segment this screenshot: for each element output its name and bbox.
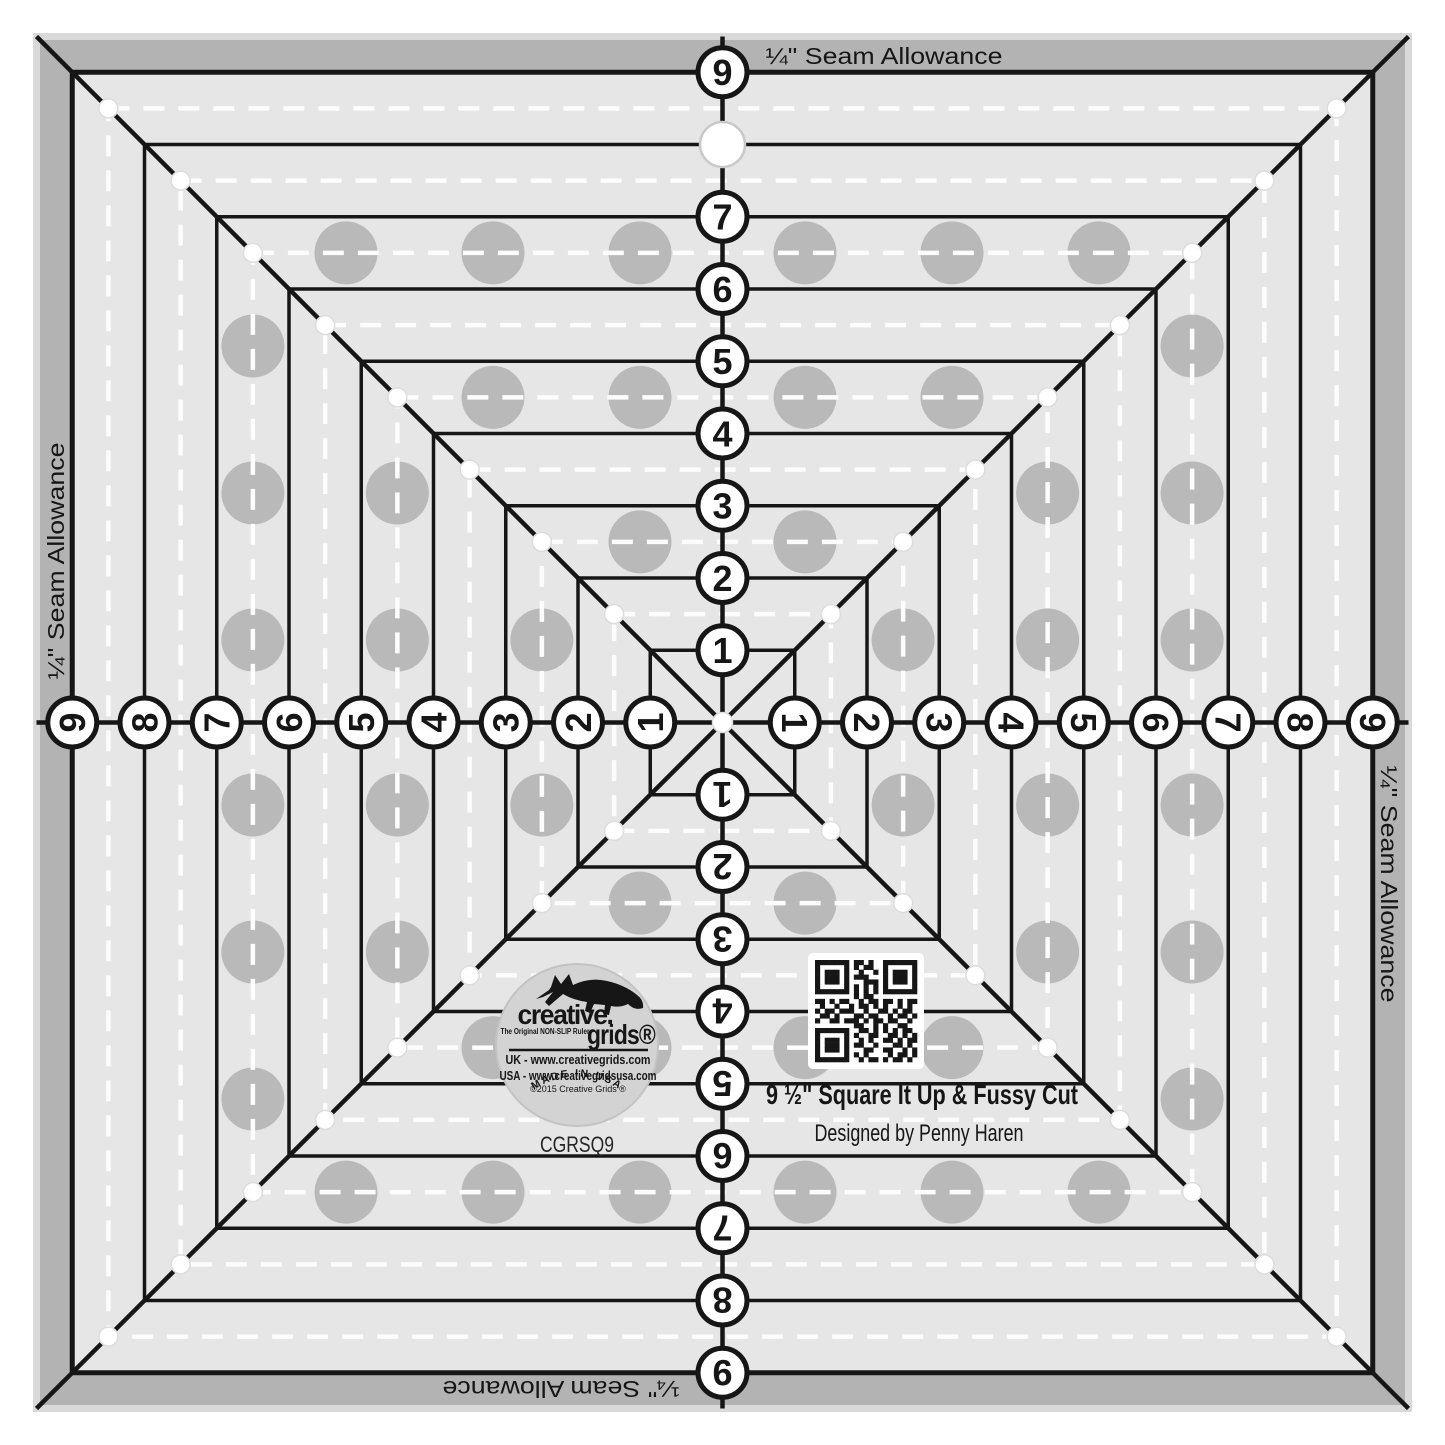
qr-module bbox=[830, 1018, 835, 1023]
qr-module bbox=[825, 1009, 830, 1014]
diagonal-dot bbox=[243, 1183, 262, 1202]
inch-marker-bottom-4: 4 bbox=[698, 987, 747, 1036]
qr-module bbox=[898, 979, 903, 984]
qr-module bbox=[815, 1028, 820, 1033]
qr-module bbox=[859, 975, 864, 980]
qr-module bbox=[883, 970, 888, 975]
qr-module bbox=[854, 960, 859, 965]
qr-module bbox=[830, 1009, 835, 1014]
qr-module bbox=[844, 1009, 849, 1014]
qr-module bbox=[902, 960, 907, 965]
qr-module bbox=[864, 1047, 869, 1052]
seam-allowance-label-right: ¼" Seam Allowance bbox=[1376, 766, 1402, 1003]
qr-module bbox=[883, 1028, 888, 1033]
qr-module bbox=[830, 1028, 835, 1033]
qr-module bbox=[830, 960, 835, 965]
qr-module bbox=[902, 1013, 907, 1018]
diagonal-dot bbox=[1327, 1327, 1346, 1346]
qr-module bbox=[839, 1028, 844, 1033]
qr-module bbox=[883, 979, 888, 984]
qr-module bbox=[912, 1013, 917, 1018]
qr-module bbox=[815, 965, 820, 970]
inch-marker-number: 6 bbox=[269, 712, 310, 732]
qr-module bbox=[815, 1009, 820, 1014]
designer-credit: Designed by Penny Haren bbox=[815, 1120, 1024, 1147]
qr-module bbox=[844, 1028, 849, 1033]
qr-module bbox=[830, 1057, 835, 1062]
inch-marker-number: 3 bbox=[712, 486, 732, 527]
qr-module bbox=[825, 1028, 830, 1033]
qr-module bbox=[830, 1047, 835, 1052]
qr-module bbox=[834, 1004, 839, 1009]
hanging-hole bbox=[700, 122, 745, 167]
qr-module bbox=[883, 975, 888, 980]
qr-module bbox=[888, 1033, 893, 1038]
qr-module bbox=[898, 960, 903, 965]
qr-module bbox=[893, 970, 898, 975]
inch-marker-number: 5 bbox=[341, 712, 382, 732]
qr-module bbox=[902, 1009, 907, 1014]
qr-module bbox=[868, 1047, 873, 1052]
inch-marker-number: 8 bbox=[124, 712, 165, 732]
inch-marker-number: 2 bbox=[558, 712, 599, 732]
qr-module bbox=[844, 960, 849, 965]
qr-module bbox=[815, 1043, 820, 1048]
diagonal-dot bbox=[1255, 171, 1274, 190]
qr-module bbox=[815, 999, 820, 1004]
diagonal-dot bbox=[1255, 1255, 1274, 1274]
qr-module bbox=[815, 970, 820, 975]
qr-module bbox=[834, 1043, 839, 1048]
diagonal-dot bbox=[532, 532, 551, 551]
qr-module bbox=[854, 965, 859, 970]
qr-module bbox=[902, 989, 907, 994]
diagonal-dot bbox=[460, 966, 479, 985]
diagonal-dot bbox=[1110, 316, 1129, 335]
qr-module bbox=[907, 1057, 912, 1062]
qr-module bbox=[868, 994, 873, 999]
qr-module bbox=[820, 999, 825, 1004]
qr-module bbox=[844, 1038, 849, 1043]
qr-module bbox=[898, 1052, 903, 1057]
qr-module bbox=[873, 970, 878, 975]
inch-marker-number: 6 bbox=[712, 269, 732, 310]
qr-module bbox=[825, 970, 830, 975]
inch-marker-right-7: 7 bbox=[1204, 698, 1253, 747]
qr-module bbox=[888, 999, 893, 1004]
qr-module bbox=[864, 984, 869, 989]
qr-module bbox=[830, 979, 835, 984]
qr-module bbox=[893, 989, 898, 994]
inch-marker-left-6: 6 bbox=[265, 698, 314, 747]
qr-module bbox=[825, 1043, 830, 1048]
inch-marker-right-5: 5 bbox=[1059, 698, 1108, 747]
diagonal-dot bbox=[171, 171, 190, 190]
seam-allowance-label-left: ¼" Seam Allowance bbox=[43, 443, 69, 680]
qr-module bbox=[868, 960, 873, 965]
inch-marker-number: 8 bbox=[712, 1280, 732, 1321]
qr-module bbox=[873, 989, 878, 994]
qr-module bbox=[820, 1057, 825, 1062]
qr-module bbox=[907, 989, 912, 994]
qr-module bbox=[878, 1018, 883, 1023]
qr-module bbox=[883, 999, 888, 1004]
qr-module bbox=[815, 989, 820, 994]
qr-module bbox=[859, 1023, 864, 1028]
qr-module bbox=[873, 984, 878, 989]
qr-module bbox=[830, 999, 835, 1004]
inch-marker-top-3: 3 bbox=[698, 481, 747, 530]
qr-module bbox=[898, 1004, 903, 1009]
inch-marker-top-2: 2 bbox=[698, 554, 747, 603]
qr-module bbox=[844, 1057, 849, 1062]
diagonal-dot bbox=[243, 243, 262, 262]
inch-marker-bottom-6: 6 bbox=[698, 1132, 747, 1181]
qr-module bbox=[873, 999, 878, 1004]
center-dot bbox=[713, 713, 733, 733]
qr-module bbox=[854, 989, 859, 994]
qr-module bbox=[830, 970, 835, 975]
diagonal-dot bbox=[1183, 1183, 1202, 1202]
inch-marker-number: 4 bbox=[991, 712, 1032, 732]
qr-module bbox=[844, 1018, 849, 1023]
qr-module bbox=[902, 1033, 907, 1038]
qr-module bbox=[815, 1033, 820, 1038]
qr-module bbox=[898, 1038, 903, 1043]
qr-module bbox=[883, 960, 888, 965]
qr-module bbox=[820, 960, 825, 965]
inch-marker-number: 8 bbox=[1280, 712, 1321, 732]
inch-marker-number: 9 bbox=[52, 712, 93, 732]
qr-module bbox=[907, 1009, 912, 1014]
qr-module bbox=[868, 979, 873, 984]
inch-marker-right-1: 1 bbox=[770, 698, 819, 747]
qr-module bbox=[893, 979, 898, 984]
qr-module bbox=[815, 1057, 820, 1062]
qr-module bbox=[912, 970, 917, 975]
inch-marker-number: 7 bbox=[712, 1207, 732, 1248]
qr-module bbox=[883, 1057, 888, 1062]
qr-module bbox=[834, 1057, 839, 1062]
qr-module bbox=[893, 1009, 898, 1014]
inch-marker-number: 2 bbox=[846, 712, 887, 732]
qr-module bbox=[902, 975, 907, 980]
inch-marker-number: 2 bbox=[712, 558, 732, 599]
qr-module bbox=[873, 1033, 878, 1038]
diagonal-dot bbox=[460, 460, 479, 479]
qr-module bbox=[815, 960, 820, 965]
qr-module bbox=[854, 975, 859, 980]
qr-module bbox=[825, 1013, 830, 1018]
qr-module bbox=[864, 965, 869, 970]
qr-module bbox=[844, 979, 849, 984]
qr-module bbox=[888, 989, 893, 994]
inch-marker-number: 9 bbox=[1352, 712, 1393, 732]
qr-module bbox=[834, 989, 839, 994]
qr-module bbox=[878, 1009, 883, 1014]
qr-module bbox=[907, 960, 912, 965]
qr-module bbox=[902, 1047, 907, 1052]
qr-module bbox=[820, 1013, 825, 1018]
qr-module bbox=[902, 1052, 907, 1057]
qr-module bbox=[902, 979, 907, 984]
inch-marker-number: 6 bbox=[712, 1135, 732, 1176]
qr-module bbox=[834, 975, 839, 980]
qr-module bbox=[864, 1004, 869, 1009]
inch-marker-number: 7 bbox=[712, 197, 732, 238]
qr-module bbox=[839, 1057, 844, 1062]
inch-marker-left-9: 9 bbox=[48, 698, 97, 747]
qr-module bbox=[859, 1057, 864, 1062]
inch-marker-number: 6 bbox=[1135, 712, 1176, 732]
inch-marker-number: 2 bbox=[712, 846, 732, 887]
qr-module bbox=[907, 1018, 912, 1023]
diagonal-dot bbox=[316, 1110, 335, 1129]
qr-module bbox=[839, 999, 844, 1004]
qr-module bbox=[815, 975, 820, 980]
qr-module bbox=[873, 1057, 878, 1062]
diagonal-dot bbox=[99, 1327, 118, 1346]
qr-module bbox=[830, 975, 835, 980]
diagonal-dot bbox=[1038, 388, 1057, 407]
qr-module bbox=[839, 960, 844, 965]
qr-module bbox=[834, 1047, 839, 1052]
inch-marker-left-3: 3 bbox=[481, 698, 530, 747]
inch-marker-right-3: 3 bbox=[915, 698, 964, 747]
qr-module bbox=[844, 970, 849, 975]
qr-module bbox=[839, 989, 844, 994]
inch-marker-bottom-7: 7 bbox=[698, 1204, 747, 1253]
qr-module bbox=[815, 984, 820, 989]
qr-module bbox=[854, 1043, 859, 1048]
qr-module bbox=[898, 970, 903, 975]
qr-module bbox=[830, 1043, 835, 1048]
qr-module bbox=[907, 1043, 912, 1048]
qr-module bbox=[893, 960, 898, 965]
qr-module bbox=[844, 1043, 849, 1048]
qr-module bbox=[883, 989, 888, 994]
qr-module bbox=[815, 979, 820, 984]
qr-module bbox=[888, 1018, 893, 1023]
qr-module bbox=[893, 975, 898, 980]
qr-module bbox=[864, 1009, 869, 1014]
qr-module bbox=[830, 989, 835, 994]
qr-module bbox=[825, 960, 830, 965]
inch-marker-number: 4 bbox=[712, 991, 732, 1032]
inch-marker-number: 7 bbox=[1207, 712, 1248, 732]
qr-module bbox=[912, 979, 917, 984]
qr-module bbox=[898, 1043, 903, 1048]
qr-module bbox=[820, 1004, 825, 1009]
qr-module bbox=[859, 1038, 864, 1043]
diagonal-dot bbox=[1110, 1110, 1129, 1129]
qr-module bbox=[854, 1033, 859, 1038]
diagonal-dot bbox=[605, 605, 624, 624]
inch-marker-right-9: 9 bbox=[1348, 698, 1397, 747]
qr-module bbox=[912, 1047, 917, 1052]
diagonal-dot bbox=[894, 894, 913, 913]
qr-module bbox=[864, 989, 869, 994]
diagonal-dot bbox=[605, 821, 624, 840]
inch-marker-bottom-1: 1 bbox=[698, 770, 747, 819]
qr-module bbox=[888, 1047, 893, 1052]
qr-module bbox=[864, 994, 869, 999]
qr-module bbox=[907, 999, 912, 1004]
qr-module bbox=[912, 1033, 917, 1038]
qr-module bbox=[898, 1057, 903, 1062]
qr-module bbox=[912, 975, 917, 980]
qr-module bbox=[844, 1047, 849, 1052]
inch-marker-number: 4 bbox=[413, 712, 454, 732]
qr-module bbox=[854, 984, 859, 989]
qr-module bbox=[859, 1004, 864, 1009]
inch-marker-number: 9 bbox=[712, 1352, 732, 1393]
qr-module bbox=[883, 1038, 888, 1043]
qr-module bbox=[883, 965, 888, 970]
qr-module bbox=[844, 999, 849, 1004]
inch-marker-top-6: 6 bbox=[698, 265, 747, 314]
qr-module bbox=[883, 984, 888, 989]
diagonal-dot bbox=[894, 532, 913, 551]
qr-module bbox=[854, 1013, 859, 1018]
qr-module bbox=[864, 1052, 869, 1057]
qr-module bbox=[839, 1009, 844, 1014]
qr-module bbox=[912, 984, 917, 989]
inch-marker-number: 4 bbox=[712, 413, 732, 454]
qr-module bbox=[859, 1013, 864, 1018]
qr-module bbox=[820, 1028, 825, 1033]
qr-module bbox=[854, 1052, 859, 1057]
qr-module bbox=[834, 960, 839, 965]
qr-module bbox=[873, 1018, 878, 1023]
diagonal-dot bbox=[316, 316, 335, 335]
inch-marker-right-4: 4 bbox=[987, 698, 1036, 747]
qr-module bbox=[902, 1028, 907, 1033]
diagonal-dot bbox=[388, 1038, 407, 1057]
qr-module bbox=[844, 989, 849, 994]
product-title: 9 ½" Square It Up & Fussy Cut bbox=[766, 1079, 1078, 1110]
inch-marker-top-9: 9 bbox=[698, 48, 747, 97]
diagonal-dot bbox=[966, 966, 985, 985]
qr-module bbox=[815, 1038, 820, 1043]
qr-module bbox=[844, 984, 849, 989]
uk-url-label: UK - www.creativegrids.com bbox=[506, 1052, 651, 1067]
inch-marker-right-6: 6 bbox=[1132, 698, 1181, 747]
qr-module bbox=[859, 1043, 864, 1048]
inch-marker-number: 5 bbox=[712, 341, 732, 382]
qr-code bbox=[808, 953, 924, 1069]
diagonal-dot bbox=[821, 821, 840, 840]
qr-module bbox=[815, 1018, 820, 1023]
inch-marker-number: 1 bbox=[712, 774, 732, 815]
qr-module bbox=[873, 1023, 878, 1028]
qr-module bbox=[834, 1028, 839, 1033]
qr-module bbox=[825, 1047, 830, 1052]
qr-module bbox=[834, 1038, 839, 1043]
qr-module bbox=[859, 970, 864, 975]
qr-module bbox=[873, 1004, 878, 1009]
inch-marker-left-2: 2 bbox=[554, 698, 603, 747]
qr-module bbox=[868, 1057, 873, 1062]
inch-marker-number: 7 bbox=[197, 712, 238, 732]
qr-module bbox=[844, 1052, 849, 1057]
diagonal-dot bbox=[1038, 1038, 1057, 1057]
diagonal-dot bbox=[821, 605, 840, 624]
brand-bottom-label: grids® bbox=[587, 1019, 656, 1050]
ruler-graphic: creative.The Original NON-SLIP Rulergrid… bbox=[0, 0, 1445, 1445]
qr-module bbox=[893, 1033, 898, 1038]
inch-marker-left-4: 4 bbox=[409, 698, 458, 747]
qr-module bbox=[854, 1018, 859, 1023]
qr-module bbox=[873, 979, 878, 984]
qr-module bbox=[893, 1057, 898, 1062]
qr-module bbox=[868, 1033, 873, 1038]
qr-module bbox=[883, 1004, 888, 1009]
qr-module bbox=[912, 1038, 917, 1043]
inch-marker-bottom-8: 8 bbox=[698, 1276, 747, 1325]
logo-badge: creative.The Original NON-SLIP Rulergrid… bbox=[496, 964, 658, 1126]
qr-module bbox=[868, 965, 873, 970]
inch-marker-top-1: 1 bbox=[698, 626, 747, 675]
diagonal-dot bbox=[171, 1255, 190, 1274]
inch-marker-bottom-9: 9 bbox=[698, 1348, 747, 1397]
inch-marker-top-4: 4 bbox=[698, 409, 747, 458]
diagonal-dot bbox=[99, 99, 118, 118]
qr-module bbox=[888, 1052, 893, 1057]
qr-module bbox=[859, 1028, 864, 1033]
diagonal-dot bbox=[388, 388, 407, 407]
qr-module bbox=[825, 975, 830, 980]
qr-module bbox=[864, 1028, 869, 1033]
inch-marker-left-1: 1 bbox=[626, 698, 675, 747]
qr-module bbox=[834, 1018, 839, 1023]
qr-module bbox=[873, 1028, 878, 1033]
qr-module bbox=[864, 975, 869, 980]
qr-module bbox=[825, 989, 830, 994]
qr-module bbox=[834, 1013, 839, 1018]
qr-module bbox=[883, 1023, 888, 1028]
inch-marker-top-7: 7 bbox=[698, 192, 747, 241]
qr-module bbox=[912, 960, 917, 965]
diagonal-dot bbox=[1327, 99, 1346, 118]
qr-module bbox=[898, 999, 903, 1004]
qr-module bbox=[898, 1023, 903, 1028]
qr-module bbox=[907, 1004, 912, 1009]
qr-module bbox=[888, 1038, 893, 1043]
seam-allowance-label-top: ¼" Seam Allowance bbox=[766, 43, 1003, 69]
qr-module bbox=[883, 1047, 888, 1052]
diagonal-dot bbox=[966, 460, 985, 479]
qr-module bbox=[859, 960, 864, 965]
qr-module bbox=[902, 970, 907, 975]
inch-marker-left-5: 5 bbox=[337, 698, 386, 747]
inch-marker-number: 3 bbox=[918, 712, 959, 732]
qr-module bbox=[830, 1038, 835, 1043]
qr-module bbox=[898, 975, 903, 980]
qr-module bbox=[873, 1013, 878, 1018]
inch-marker-number: 1 bbox=[712, 630, 732, 671]
inch-marker-number: 9 bbox=[712, 52, 732, 93]
inch-marker-number: 5 bbox=[712, 1063, 732, 1104]
inch-marker-right-8: 8 bbox=[1276, 698, 1325, 747]
qr-module bbox=[912, 1052, 917, 1057]
qr-module bbox=[902, 1023, 907, 1028]
inch-marker-number: 3 bbox=[712, 918, 732, 959]
qr-module bbox=[854, 994, 859, 999]
qr-module bbox=[844, 975, 849, 980]
qr-module bbox=[883, 1009, 888, 1014]
inch-marker-bottom-2: 2 bbox=[698, 843, 747, 892]
